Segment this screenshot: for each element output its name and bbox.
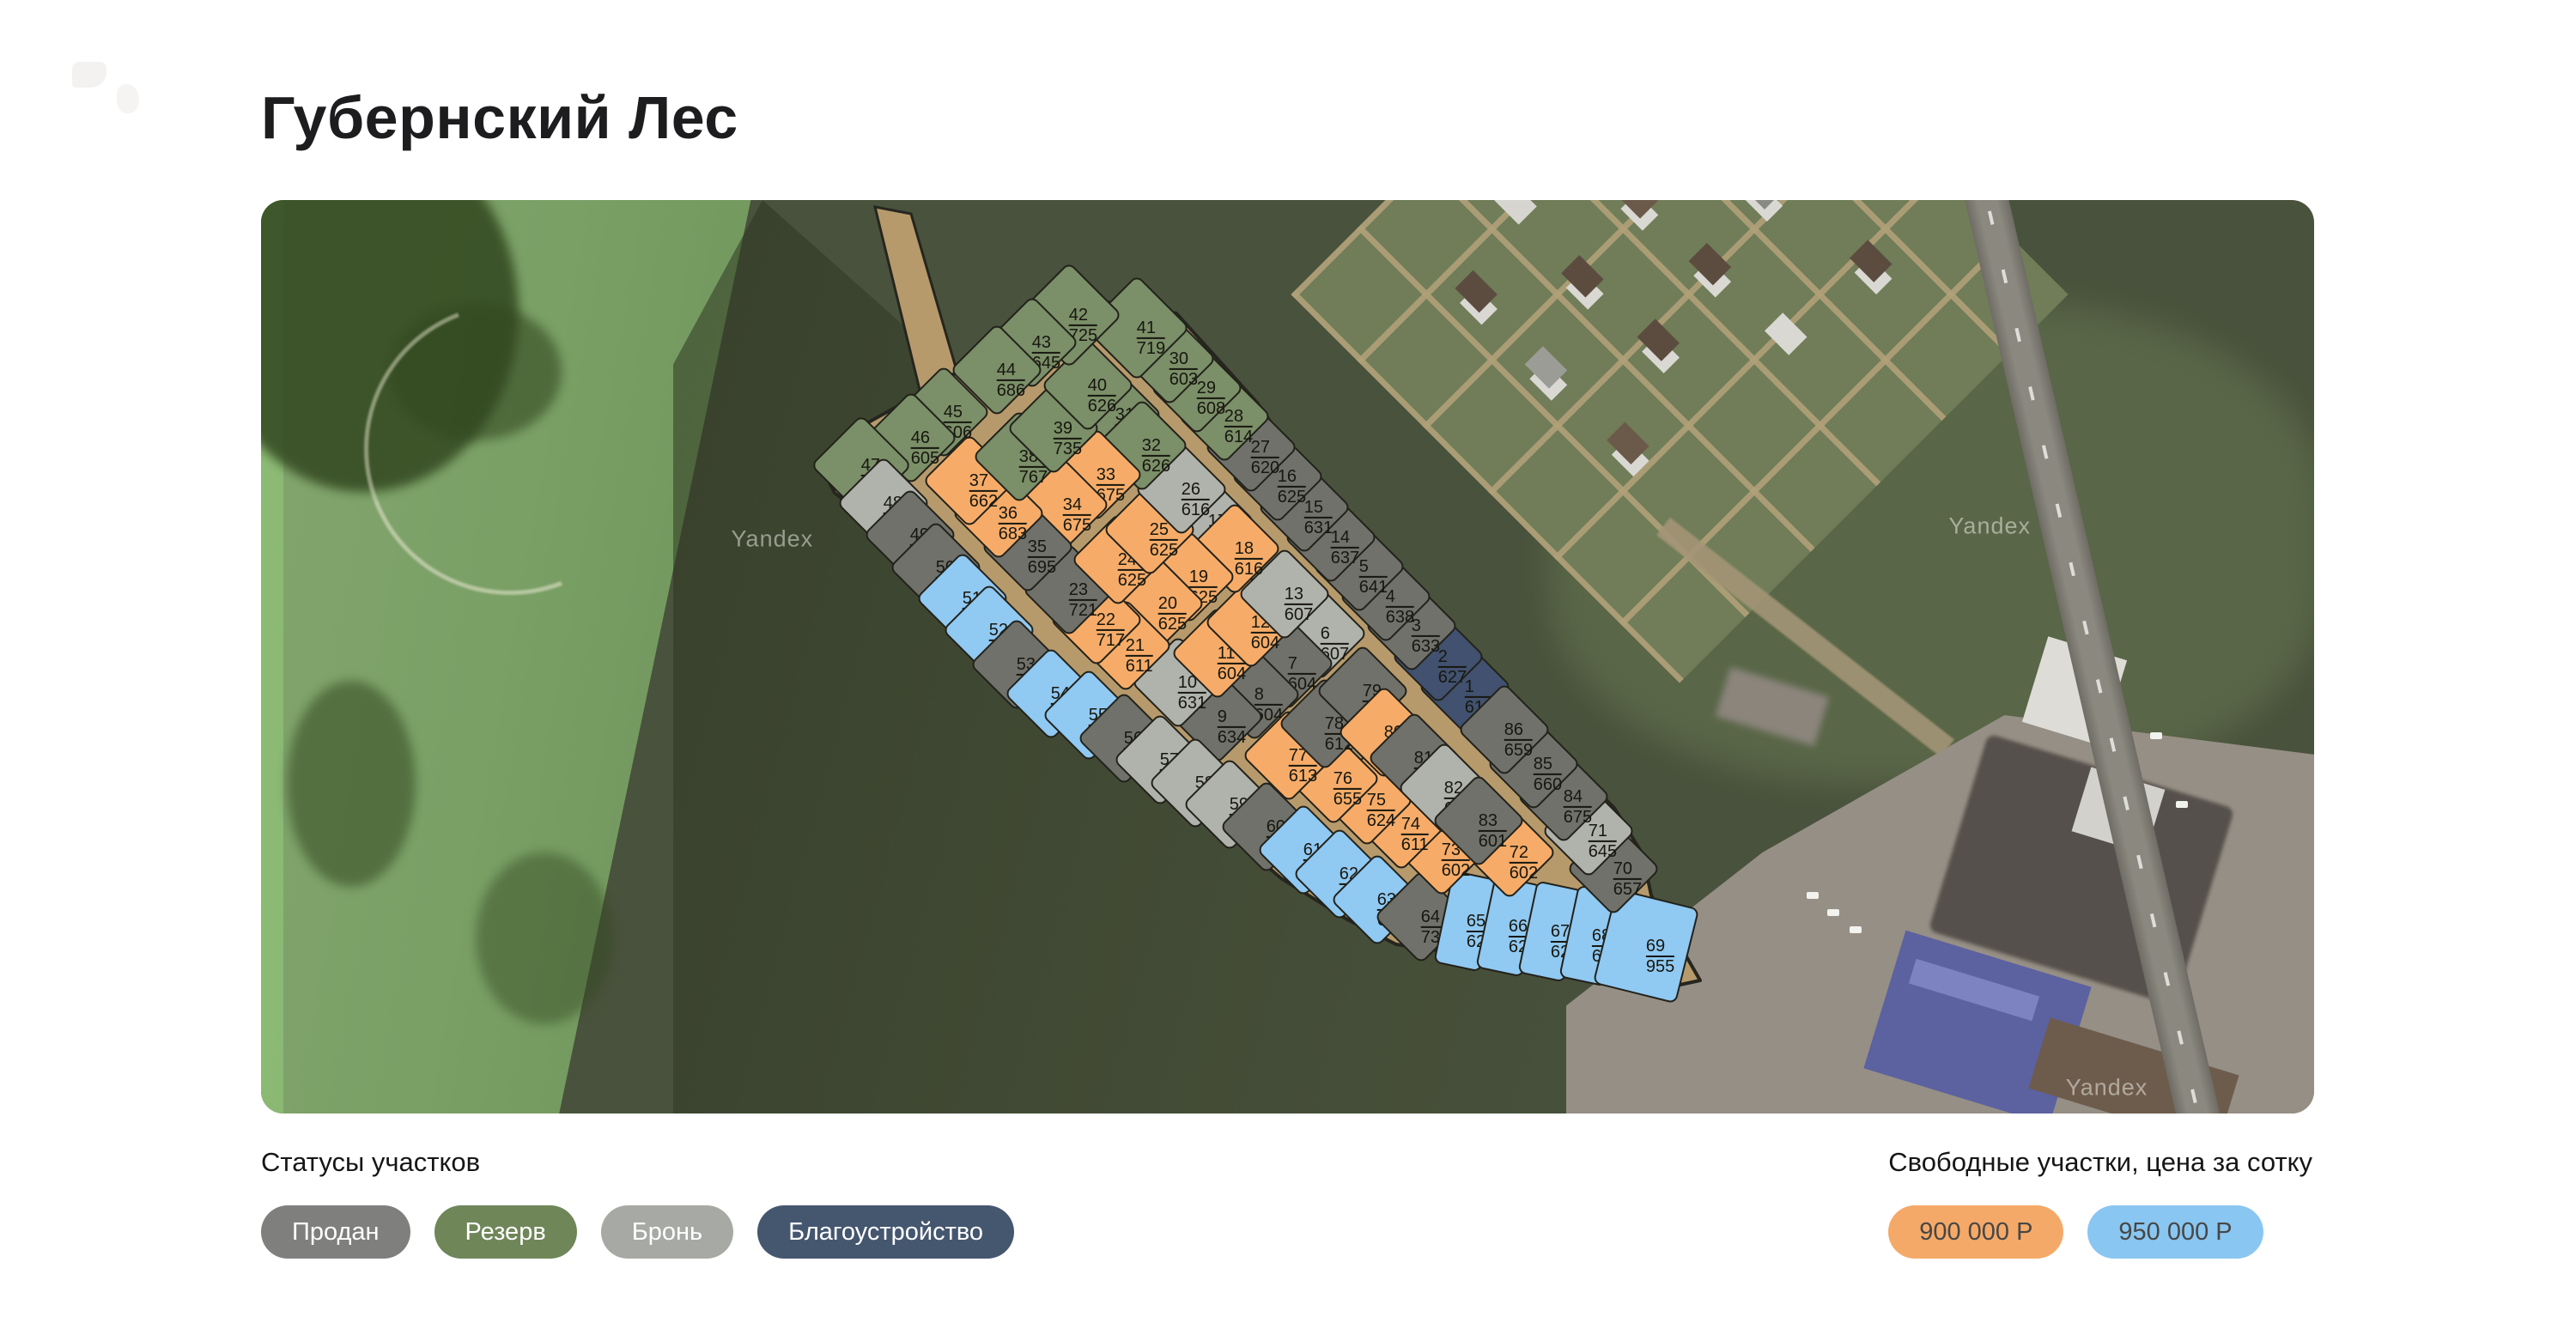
plot-area-value: 767 — [1019, 465, 1048, 486]
plot-area-value: 603 — [1170, 367, 1198, 388]
plot-number: 9 — [1218, 708, 1227, 726]
plot-area-value: 695 — [1028, 555, 1056, 576]
plot-number: 35 — [1028, 538, 1047, 556]
plot-area-value: 735 — [1054, 437, 1082, 458]
plot-area-value: 602 — [1510, 861, 1538, 882]
plot-number: 7 — [1288, 655, 1297, 673]
plot-number: 33 — [1097, 466, 1115, 484]
plot-area-value: 620 — [1251, 456, 1279, 476]
plot-number: 76 — [1334, 770, 1352, 788]
plot-number: 45 — [944, 404, 963, 422]
plot-area-value: 602 — [1442, 859, 1470, 879]
plot-area-value: 662 — [969, 489, 998, 510]
plot-number: 74 — [1401, 816, 1420, 834]
plot-number: 28 — [1224, 408, 1243, 426]
plot-area-value: 613 — [1289, 764, 1317, 785]
plot-area-value: 657 — [1613, 877, 1642, 898]
plot-area-value: 616 — [1235, 557, 1263, 578]
plot-area-value: 601 — [1479, 829, 1507, 850]
plot-number: 41 — [1137, 319, 1156, 337]
plot-area-value: 633 — [1412, 634, 1440, 655]
plot-number: 69 — [1646, 937, 1665, 956]
status-pill[interactable]: Бронь — [601, 1205, 733, 1259]
plot-number: 42 — [1069, 306, 1088, 325]
plot-area-value: 686 — [997, 379, 1025, 399]
plot-number: 70 — [1613, 860, 1632, 878]
plot-area-value: 683 — [999, 522, 1027, 543]
yandex-watermark: Yandex — [1948, 513, 2031, 539]
page-title: Губернский Лес — [261, 83, 738, 152]
plot-number: 23 — [1069, 581, 1088, 599]
plot-area-value: 631 — [1304, 516, 1333, 537]
yandex-watermark: Yandex — [2066, 1075, 2148, 1101]
plot-area-value: 614 — [1224, 425, 1253, 446]
plot-area-value: 645 — [1589, 840, 1617, 860]
status-pill[interactable]: Благоустройство — [757, 1205, 1014, 1259]
plot-area-value: 611 — [1401, 833, 1429, 853]
plot-number: 43 — [1032, 334, 1051, 352]
plot-area-value: 641 — [1359, 575, 1388, 596]
plot-number: 32 — [1142, 437, 1161, 455]
plot-number: 15 — [1304, 499, 1323, 517]
plot-area-value: 717 — [1097, 628, 1125, 649]
plot-number: 20 — [1158, 595, 1177, 613]
plot-number: 37 — [969, 472, 988, 490]
plot-number: 64 — [1421, 908, 1440, 926]
plot-area-value: 637 — [1331, 546, 1359, 567]
plot-number: 6 — [1321, 625, 1330, 643]
plot-area-value: 660 — [1534, 773, 1562, 793]
plot-number: 84 — [1564, 788, 1583, 806]
plot-number: 44 — [997, 361, 1016, 379]
plot-area-value: 625 — [1150, 538, 1178, 559]
plot-area-value: 604 — [1218, 662, 1246, 683]
plot-number: 72 — [1510, 844, 1528, 862]
plot-area-value: 626 — [1142, 454, 1170, 475]
plot-area-value: 721 — [1069, 598, 1097, 619]
plot-number: 16 — [1278, 468, 1297, 486]
plot-number: 18 — [1235, 540, 1254, 558]
plot-area-value: 634 — [1218, 725, 1246, 746]
plot-area-value: 631 — [1178, 691, 1206, 712]
plot-area-value: 625 — [1118, 568, 1146, 589]
plot-number: 13 — [1285, 586, 1303, 604]
plot-number: 5 — [1359, 558, 1369, 576]
plot-area-value: 625 — [1158, 612, 1187, 633]
plot-area-value: 638 — [1386, 605, 1414, 626]
plot-number: 83 — [1479, 812, 1498, 830]
satellite-map[interactable]: 1 618 2 627 3 633 4 638 5 641 — [261, 200, 2314, 1113]
statuses-pill-row: ПроданРезервБроньБлагоустройство — [261, 1205, 1014, 1259]
plot-number: 75 — [1367, 792, 1386, 810]
plot-area-value: 625 — [1278, 485, 1306, 506]
plot-number: 14 — [1331, 529, 1350, 547]
plot-area-value: 627 — [1438, 665, 1467, 686]
plot-area-value: 611 — [1126, 654, 1153, 675]
plot-number: 85 — [1534, 755, 1552, 774]
plot-area-value: 608 — [1197, 397, 1225, 417]
price-pill[interactable]: 900 000 Р — [1888, 1205, 2063, 1259]
plot-number: 8 — [1255, 686, 1264, 704]
plot-number: 19 — [1189, 568, 1208, 586]
plot-number: 29 — [1197, 379, 1216, 397]
plot-number: 46 — [911, 429, 930, 447]
plot-number: 27 — [1251, 439, 1270, 457]
plot-number: 25 — [1150, 521, 1169, 539]
plot-area-value: 675 — [1063, 513, 1091, 534]
plot-area-value: 719 — [1137, 337, 1165, 357]
prices-pill-row: 900 000 Р950 000 Р — [1888, 1205, 2312, 1259]
statuses-legend-title: Статусы участков — [261, 1147, 1014, 1178]
plot-area-value: 607 — [1285, 603, 1313, 623]
plot-number: 22 — [1097, 611, 1115, 629]
plot-area-value: 605 — [911, 446, 939, 467]
plot-number: 21 — [1126, 637, 1145, 655]
plot-number: 36 — [999, 505, 1018, 523]
status-pill[interactable]: Резерв — [434, 1205, 577, 1259]
plot-area-value: 624 — [1367, 809, 1395, 829]
plot-number: 34 — [1063, 496, 1082, 514]
plot-area-value: 616 — [1182, 498, 1210, 519]
price-pill[interactable]: 950 000 Р — [2087, 1205, 2263, 1259]
plot-area-value: 659 — [1504, 738, 1533, 759]
plot-area-value: 604 — [1251, 631, 1279, 652]
plot-number: 30 — [1170, 350, 1188, 368]
logo-mark — [72, 50, 155, 118]
plot-number: 39 — [1054, 420, 1072, 438]
plot-area-value: 675 — [1564, 805, 1592, 826]
plot-area-value: 655 — [1334, 787, 1362, 808]
plot-area-value: 955 — [1646, 955, 1674, 975]
yandex-watermark: Yandex — [732, 525, 814, 552]
prices-legend-title: Свободные участки, цена за сотку — [1888, 1147, 2312, 1178]
statuses-legend: Статусы участков ПроданРезервБроньБлагоу… — [261, 1147, 1014, 1259]
plot-number: 40 — [1088, 377, 1107, 395]
status-pill[interactable]: Продан — [261, 1205, 410, 1259]
prices-legend: Свободные участки, цена за сотку 900 000… — [1888, 1147, 2312, 1259]
plot-number: 26 — [1182, 481, 1200, 499]
plot-area-value: 626 — [1088, 394, 1116, 415]
plot-number: 86 — [1504, 721, 1523, 739]
